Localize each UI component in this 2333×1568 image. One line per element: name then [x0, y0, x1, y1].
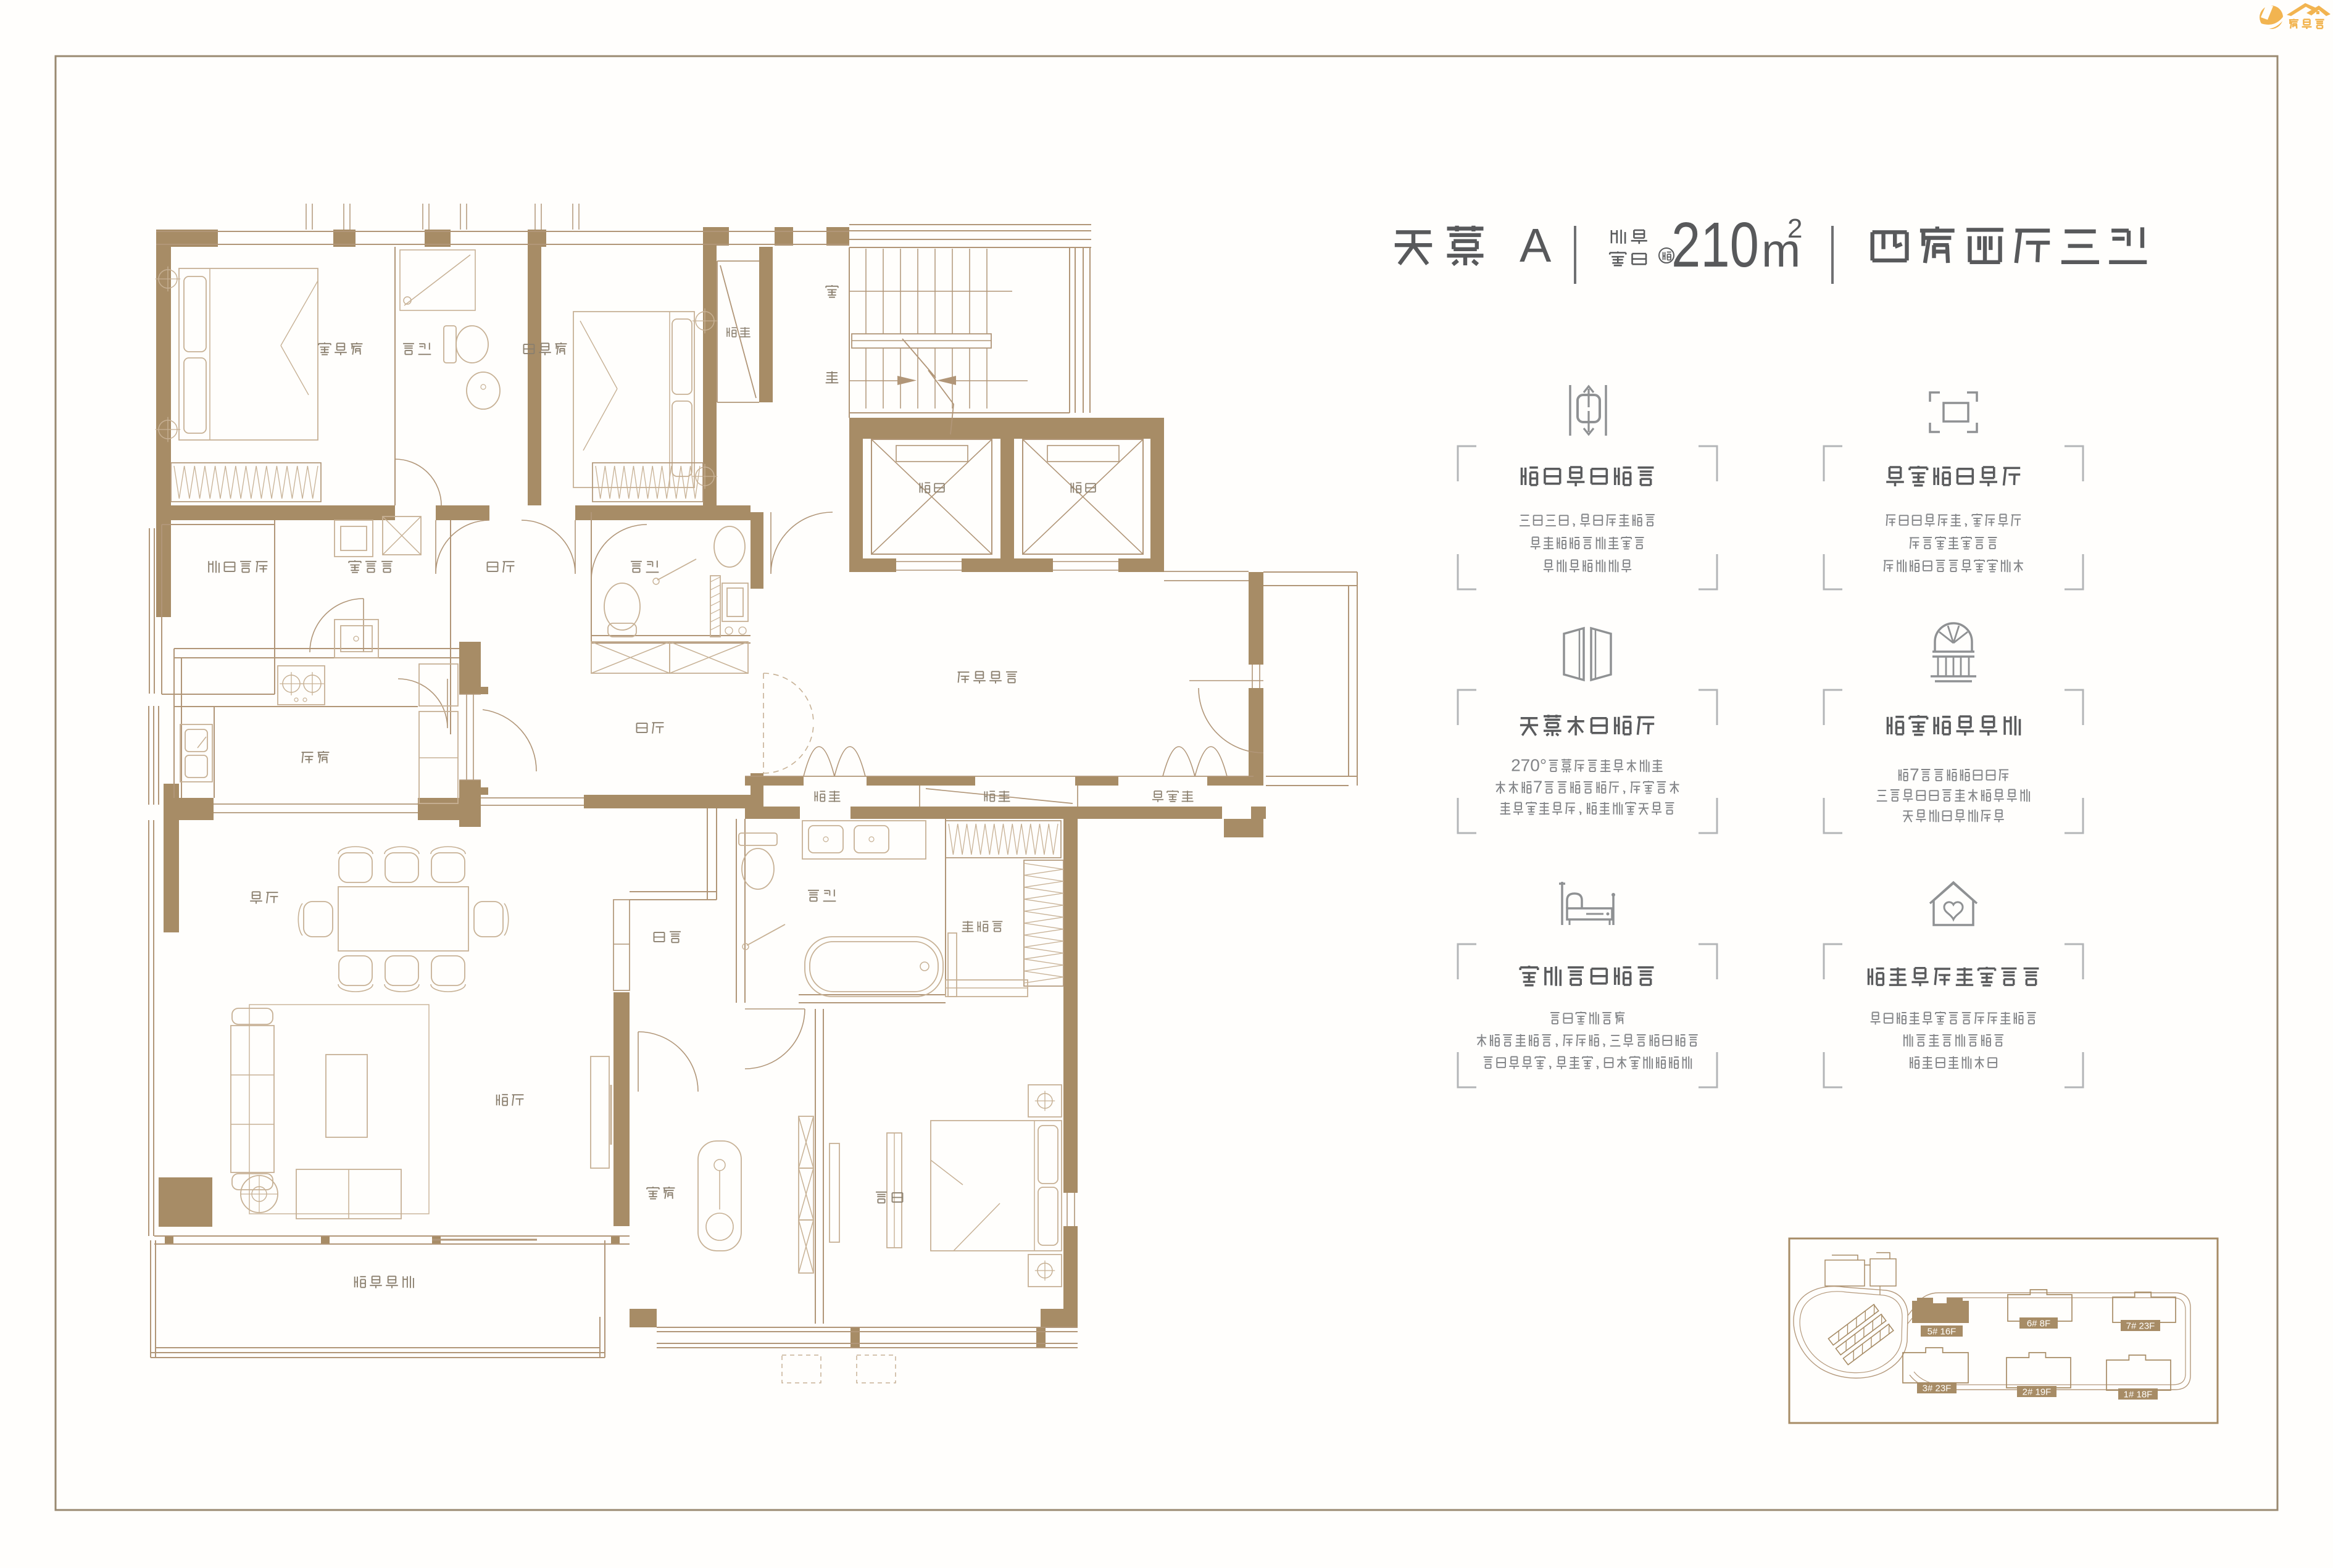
svg-text:2# 19F: 2# 19F	[2023, 1387, 2052, 1398]
svg-text:2: 2	[1787, 214, 1802, 244]
svg-text:210: 210	[1671, 209, 1759, 280]
svg-text:A: A	[1520, 219, 1552, 272]
svg-text:6# 8F: 6# 8F	[2027, 1319, 2050, 1329]
svg-text:1# 18F: 1# 18F	[2124, 1390, 2153, 1400]
svg-text:270°: 270°	[1511, 756, 1547, 775]
svg-text:7: 7	[1910, 765, 1919, 784]
svg-text:3# 23F: 3# 23F	[1923, 1383, 1952, 1394]
svg-text:5# 16F: 5# 16F	[1928, 1327, 1957, 1337]
svg-text:7: 7	[1533, 778, 1543, 797]
svg-text:7# 23F: 7# 23F	[2126, 1321, 2155, 1332]
